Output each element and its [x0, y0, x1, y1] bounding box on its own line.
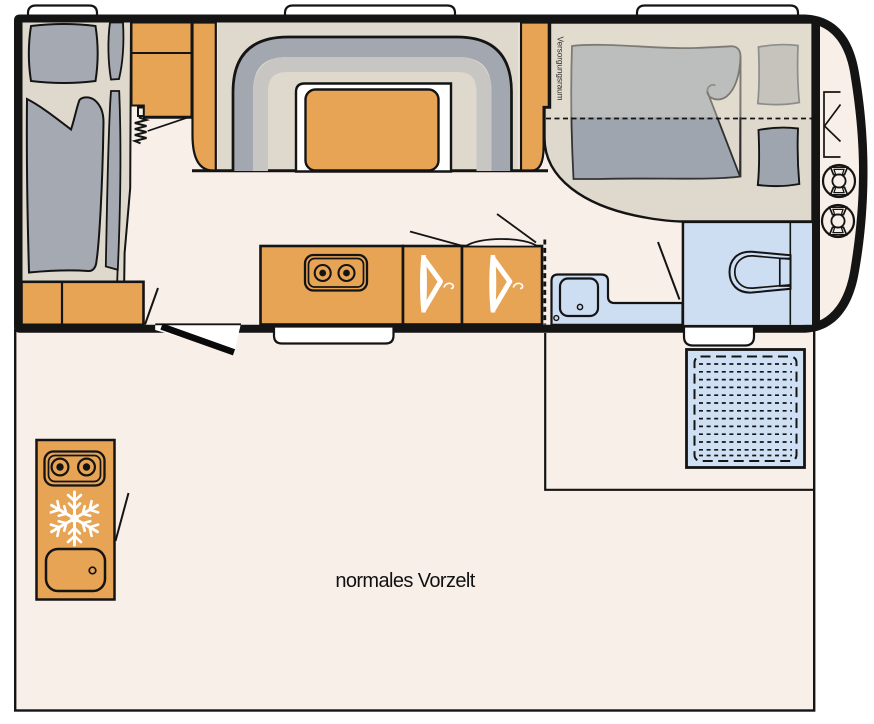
svg-text:Versorgungsraum: Versorgungsraum	[556, 37, 566, 101]
svg-text:normales Vorzelt: normales Vorzelt	[335, 570, 475, 592]
